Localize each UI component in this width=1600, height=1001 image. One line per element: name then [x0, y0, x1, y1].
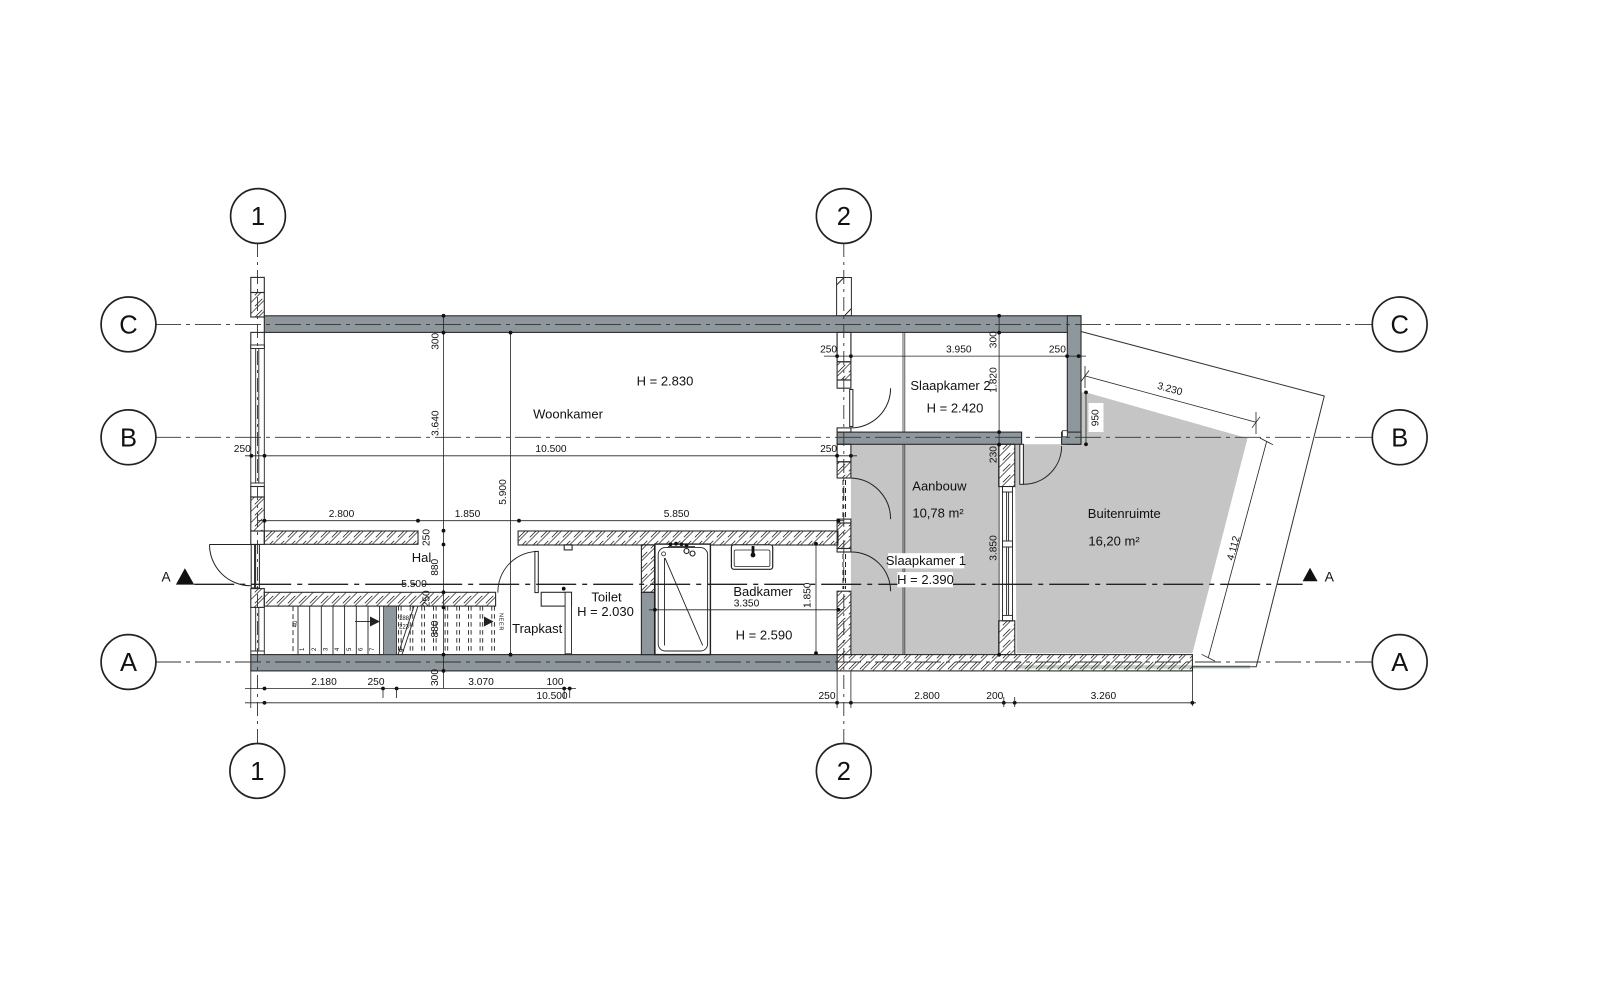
svg-text:250: 250	[422, 529, 433, 546]
svg-text:H = 2.030: H = 2.030	[577, 604, 634, 619]
svg-text:3.850: 3.850	[989, 535, 1000, 561]
svg-text:2.180: 2.180	[311, 677, 337, 688]
svg-text:250: 250	[820, 444, 837, 455]
svg-text:NEER: NEER	[498, 613, 504, 631]
svg-text:250: 250	[819, 691, 836, 702]
svg-text:Slaapkamer 2: Slaapkamer 2	[910, 378, 990, 393]
svg-text:H = 2.590: H = 2.590	[736, 628, 793, 643]
svg-text:200: 200	[986, 691, 1003, 702]
svg-text:3.950: 3.950	[946, 345, 972, 356]
svg-text:A: A	[1391, 649, 1408, 677]
svg-text:5.900: 5.900	[498, 479, 509, 505]
svg-text:10.500: 10.500	[535, 444, 566, 455]
svg-text:16,20 m²: 16,20 m²	[1088, 533, 1140, 548]
svg-text:H = 2.420: H = 2.420	[927, 400, 984, 415]
svg-text:3.350: 3.350	[734, 598, 760, 609]
svg-text:2: 2	[837, 758, 851, 786]
svg-text:3.260: 3.260	[1091, 691, 1117, 702]
svg-text:Badkamer: Badkamer	[733, 584, 793, 599]
svg-text:B: B	[1391, 424, 1408, 452]
svg-text:3.070: 3.070	[468, 677, 494, 688]
svg-text:188: 188	[399, 616, 410, 622]
svg-text:5.500: 5.500	[401, 579, 427, 590]
svg-text:A: A	[1325, 569, 1335, 585]
svg-text:250: 250	[1049, 345, 1066, 356]
svg-text:300: 300	[431, 332, 442, 349]
svg-text:Hal: Hal	[412, 550, 432, 565]
svg-text:Trapkast: Trapkast	[512, 621, 562, 636]
svg-text:3.640: 3.640	[431, 410, 442, 436]
svg-text:250: 250	[368, 677, 385, 688]
svg-text:Aanbouw: Aanbouw	[912, 479, 967, 494]
svg-text:10.500: 10.500	[536, 691, 567, 702]
svg-text:1.850: 1.850	[803, 582, 814, 608]
svg-text:250: 250	[422, 590, 433, 607]
svg-text:300: 300	[989, 331, 1000, 348]
svg-text:1: 1	[251, 203, 265, 231]
svg-text:Toilet: Toilet	[591, 590, 622, 605]
svg-text:250: 250	[820, 345, 837, 356]
svg-text:223: 223	[399, 625, 410, 631]
svg-text:2.800: 2.800	[329, 509, 355, 520]
svg-text:A: A	[162, 569, 172, 584]
svg-text:H = 2.390: H = 2.390	[897, 572, 954, 587]
svg-text:A: A	[120, 649, 137, 677]
svg-text:1: 1	[250, 758, 264, 786]
svg-text:1.850: 1.850	[455, 509, 481, 520]
svg-text:300: 300	[430, 669, 441, 686]
svg-text:2: 2	[837, 203, 851, 231]
svg-text:5.850: 5.850	[664, 509, 690, 520]
svg-text:230: 230	[989, 446, 1000, 463]
svg-text:B: B	[120, 424, 137, 452]
svg-text:C: C	[119, 311, 137, 339]
svg-text:880: 880	[430, 558, 441, 575]
svg-text:880: 880	[430, 620, 441, 637]
svg-text:250: 250	[234, 444, 251, 455]
svg-text:100: 100	[547, 677, 564, 688]
svg-text:40: 40	[293, 620, 299, 627]
svg-text:950: 950	[1090, 409, 1101, 426]
svg-text:Slaapkamer 1: Slaapkamer 1	[886, 553, 966, 568]
svg-text:Woonkamer: Woonkamer	[533, 407, 604, 422]
svg-text:Buitenruimte: Buitenruimte	[1088, 506, 1161, 521]
svg-text:2.800: 2.800	[914, 691, 940, 702]
svg-text:10,78 m²: 10,78 m²	[912, 506, 964, 521]
svg-text:H = 2.830: H = 2.830	[637, 373, 694, 388]
svg-text:C: C	[1390, 311, 1408, 339]
